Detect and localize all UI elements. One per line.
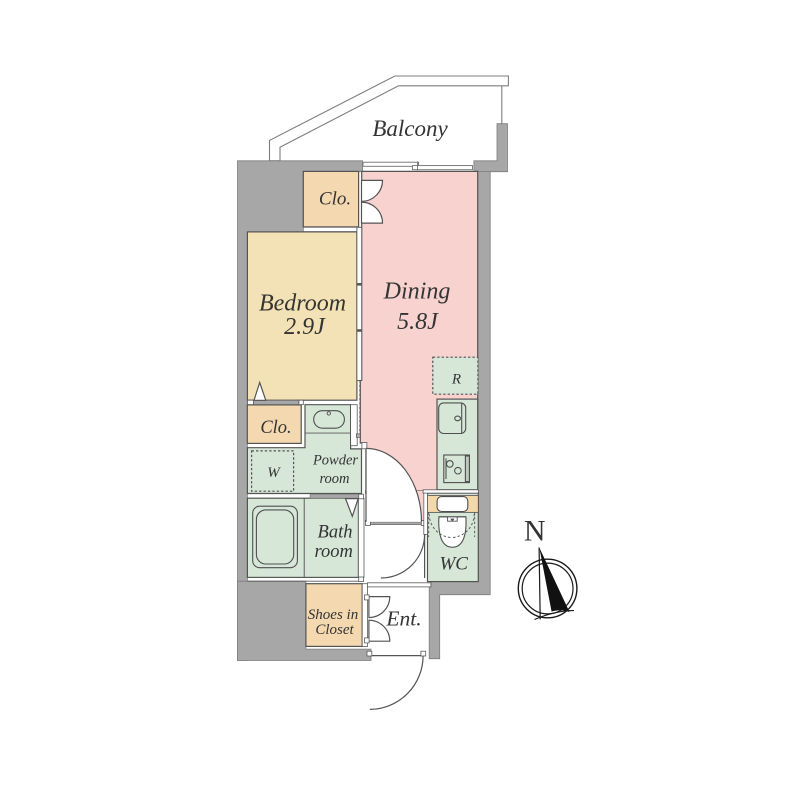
svg-text:Clo.: Clo. — [319, 189, 351, 210]
svg-text:Bedroom: Bedroom — [259, 291, 346, 317]
svg-text:WC: WC — [439, 553, 468, 574]
svg-text:room: room — [315, 542, 353, 562]
svg-text:N: N — [524, 515, 546, 548]
svg-text:R: R — [451, 372, 461, 388]
svg-text:room: room — [319, 471, 349, 487]
svg-text:Balcony: Balcony — [372, 116, 448, 141]
svg-text:Bath: Bath — [318, 523, 353, 543]
svg-text:Closet: Closet — [315, 622, 354, 638]
svg-text:Dining: Dining — [383, 279, 451, 305]
svg-text:Powder: Powder — [312, 453, 358, 469]
svg-text:Clo.: Clo. — [260, 418, 291, 438]
svg-text:2.9J: 2.9J — [284, 314, 326, 340]
svg-text:Ent.: Ent. — [385, 607, 421, 631]
svg-text:5.8J: 5.8J — [397, 309, 439, 335]
svg-text:Shoes in: Shoes in — [308, 607, 358, 623]
svg-text:W: W — [267, 465, 281, 481]
